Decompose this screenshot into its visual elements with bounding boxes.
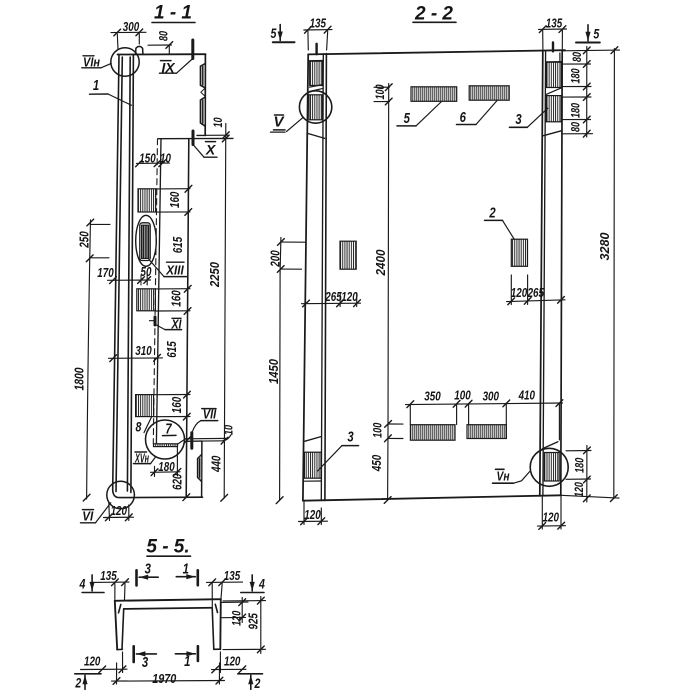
svg-text:3: 3 (515, 111, 522, 128)
svg-text:1 - 1: 1 - 1 (154, 3, 192, 24)
svg-text:120: 120 (84, 654, 101, 669)
svg-text:2: 2 (489, 205, 497, 222)
svg-text:3: 3 (145, 560, 152, 577)
svg-text:180: 180 (572, 458, 586, 473)
svg-text:10: 10 (211, 117, 225, 127)
svg-text:4: 4 (258, 575, 265, 591)
svg-text:180: 180 (569, 68, 583, 83)
svg-text:615: 615 (170, 236, 185, 253)
svg-text:2: 2 (254, 675, 261, 691)
svg-text:100: 100 (454, 387, 471, 402)
svg-text:925: 925 (245, 613, 260, 630)
svg-text:135: 135 (310, 16, 327, 31)
svg-text:170: 170 (97, 265, 114, 280)
svg-text:120: 120 (111, 503, 128, 518)
svg-text:615: 615 (164, 341, 179, 358)
svg-text:VI: VI (82, 509, 93, 524)
svg-text:Vн: Vн (497, 468, 510, 483)
svg-text:3: 3 (142, 654, 149, 671)
svg-text:2 - 2: 2 - 2 (414, 4, 453, 25)
svg-text:5: 5 (593, 26, 599, 42)
svg-text:120: 120 (304, 507, 321, 522)
svg-text:5: 5 (404, 110, 411, 127)
svg-text:120: 120 (511, 285, 528, 300)
svg-text:2250: 2250 (207, 261, 222, 288)
svg-text:1: 1 (184, 653, 190, 670)
svg-text:5: 5 (271, 25, 277, 41)
svg-text:8: 8 (136, 419, 142, 435)
svg-text:1800: 1800 (72, 367, 87, 391)
svg-text:120: 120 (572, 482, 586, 497)
svg-text:2: 2 (75, 675, 82, 691)
svg-text:300: 300 (483, 389, 500, 404)
svg-text:120: 120 (341, 289, 358, 304)
svg-text:XIII: XIII (165, 262, 184, 277)
svg-text:3280: 3280 (597, 232, 612, 261)
svg-text:440: 440 (208, 455, 223, 473)
svg-text:160: 160 (167, 191, 182, 208)
svg-text:80: 80 (569, 122, 583, 132)
svg-text:135: 135 (100, 568, 117, 583)
svg-text:620: 620 (169, 473, 184, 490)
svg-text:2400: 2400 (373, 249, 388, 277)
svg-text:450: 450 (369, 454, 384, 472)
svg-text:1450: 1450 (266, 358, 281, 384)
svg-text:1: 1 (93, 77, 99, 94)
svg-text:1: 1 (183, 560, 189, 577)
svg-text:135: 135 (546, 16, 563, 31)
svg-text:80: 80 (157, 31, 171, 41)
svg-text:80: 80 (570, 52, 584, 62)
svg-text:4: 4 (79, 575, 86, 591)
svg-text:5 - 5.: 5 - 5. (146, 537, 189, 558)
svg-text:3: 3 (347, 429, 354, 446)
svg-text:120: 120 (224, 654, 241, 669)
svg-text:10: 10 (222, 425, 236, 435)
svg-text:310: 310 (135, 343, 152, 358)
svg-text:265: 265 (527, 285, 545, 300)
svg-text:X: X (205, 142, 217, 158)
svg-text:160: 160 (169, 396, 184, 413)
svg-text:410: 410 (518, 388, 536, 403)
svg-text:160: 160 (169, 290, 184, 307)
svg-text:6: 6 (460, 109, 467, 126)
svg-text:135: 135 (224, 568, 241, 583)
svg-text:100: 100 (371, 423, 385, 438)
svg-text:350: 350 (424, 389, 441, 404)
svg-text:300: 300 (123, 19, 140, 34)
svg-text:180: 180 (569, 103, 583, 118)
svg-text:100: 100 (373, 84, 387, 99)
svg-text:1970: 1970 (152, 671, 177, 686)
svg-text:250: 250 (77, 231, 92, 249)
